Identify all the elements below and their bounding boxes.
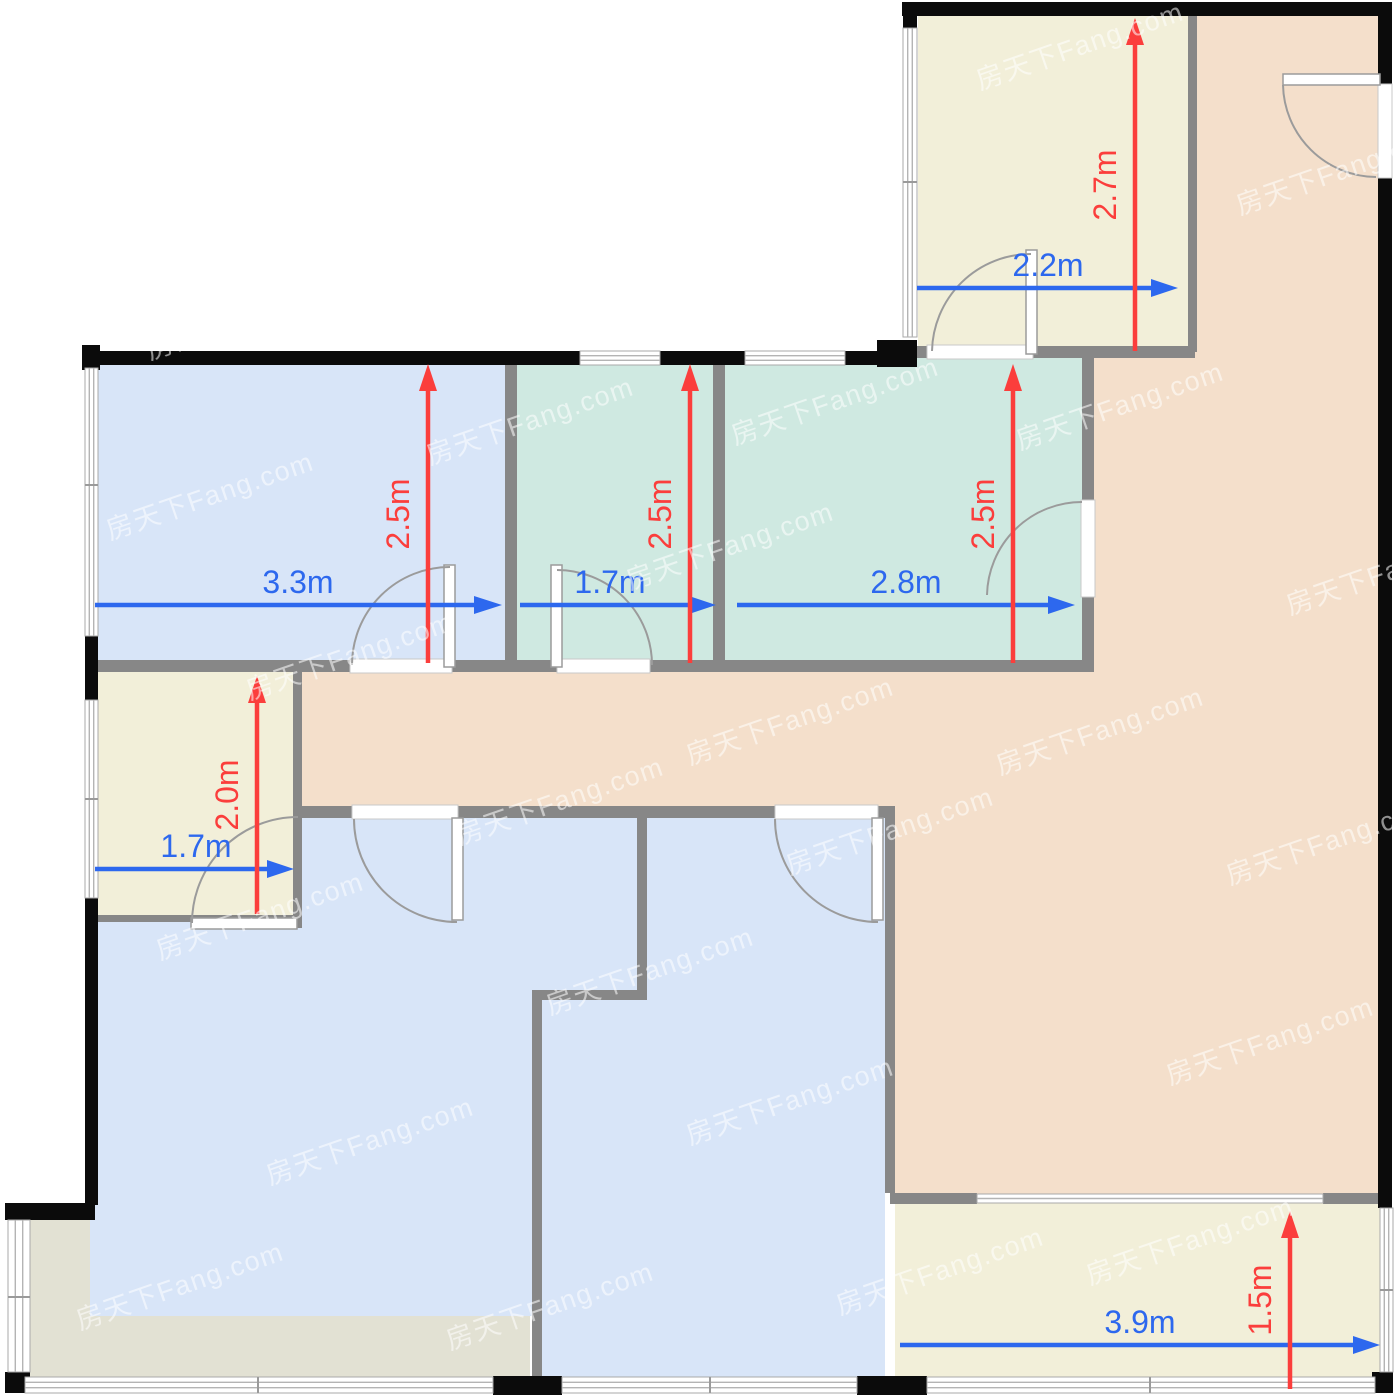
watermark-text: 房天下Fang.com: [142, 266, 357, 365]
dim-label: 1.5m: [1242, 1264, 1278, 1335]
dim-label: 2.5m: [965, 478, 1001, 549]
dim-label: 1.7m: [160, 828, 231, 864]
room-bedroom-top-middle: [722, 352, 1090, 672]
dim-label: 3.3m: [262, 564, 333, 600]
room-small-left: [90, 665, 300, 920]
dim-label: 2.5m: [380, 478, 416, 549]
dim-label: 2.2m: [1012, 247, 1083, 283]
dim-label: 2.7m: [1087, 149, 1123, 220]
dim-label: 2.8m: [870, 564, 941, 600]
floor-plan-screenshot: 3.3m 1.7m 2.8m 2.2m 1.7m 3.9m: [0, 0, 1400, 1395]
room-balcony-bottom-right: [895, 1200, 1385, 1390]
dim-label: 2.5m: [642, 478, 678, 549]
dim-label: 2.0m: [209, 759, 245, 830]
floor-plan-canvas: 3.3m 1.7m 2.8m 2.2m 1.7m 3.9m: [0, 0, 1400, 1395]
watermark-text: 房天下Fang.com: [412, 206, 627, 305]
dim-label: 3.9m: [1104, 1304, 1175, 1340]
